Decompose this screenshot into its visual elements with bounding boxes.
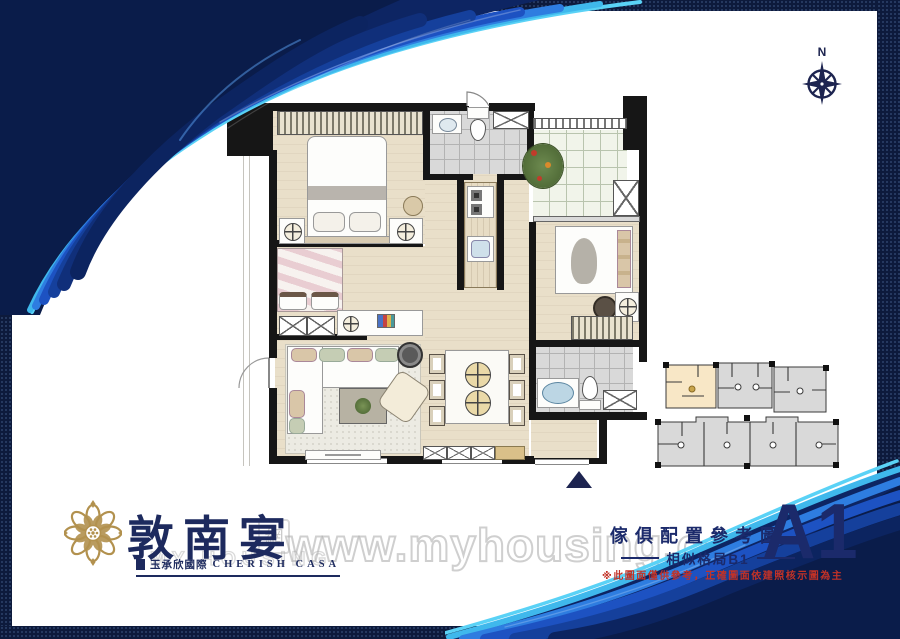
- unit-code: A1: [762, 492, 859, 570]
- lotus-logo-icon: [64, 496, 122, 574]
- unit-highlight-dot: [689, 386, 695, 392]
- floorplan-page: { "proof_stamp": { "text": "打樣稿" }, "com…: [0, 0, 900, 639]
- compass-north-label: N: [799, 46, 845, 58]
- proof-draft-stamp: 打樣稿: [56, 74, 114, 212]
- similar-layout-label: 相似格局B1: [666, 548, 749, 568]
- caption-title: 傢俱配置參考圖: [610, 522, 785, 548]
- frame-top: [0, 0, 900, 11]
- entrance-marker: [566, 471, 592, 488]
- dash-left: [621, 557, 659, 559]
- developer-name: 玉承欣國際: [150, 557, 208, 572]
- frame-right: [877, 0, 900, 639]
- developer-line: 玉承欣國際 CHERISH CASA: [136, 557, 340, 577]
- compass-rose: N: [799, 46, 845, 111]
- door-swings: [227, 90, 647, 484]
- compass-star-icon: [799, 58, 845, 106]
- developer-name-en: CHERISH CASA: [213, 559, 341, 570]
- key-plan: [652, 356, 842, 474]
- developer-logo-icon: [136, 559, 145, 570]
- frame-bottom: [0, 626, 900, 639]
- floor-plan: [227, 90, 647, 484]
- frame-left: [0, 0, 12, 639]
